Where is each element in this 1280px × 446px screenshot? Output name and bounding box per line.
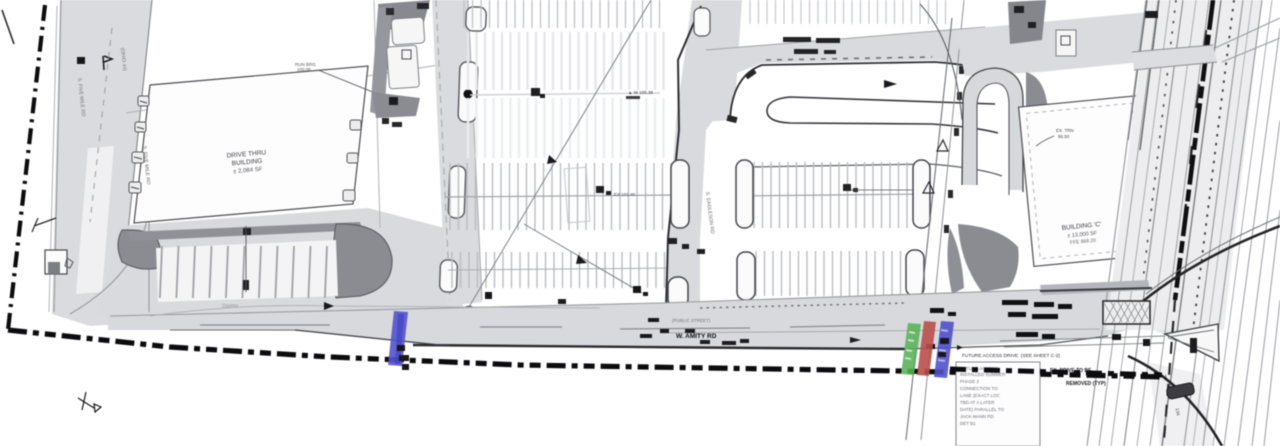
svg-text:EX 101.45: EX 101.45: [614, 192, 636, 197]
svg-text:DET B1: DET B1: [960, 421, 976, 426]
svg-text:FUTURE ACCESS DRIVE (SEE SHEE: FUTURE ACCESS DRIVE (SEE SHEET C-2): [962, 353, 1060, 359]
svg-text:100.08: 100.08: [297, 67, 311, 72]
svg-text:EX. TRN: EX. TRN: [1056, 128, 1074, 133]
svg-text:LANE (EXACT LOC: LANE (EXACT LOC: [960, 393, 1001, 398]
svg-text:86.50: 86.50: [1058, 134, 1070, 139]
svg-text:TBD AT A LATER: TBD AT A LATER: [960, 400, 995, 405]
svg-text:(PUBLIC STREET): (PUBLIC STREET): [672, 318, 711, 323]
svg-text:PHASE 2: PHASE 2: [960, 379, 980, 384]
svg-text:REMOVED (TYP): REMOVED (TYP): [1066, 381, 1106, 387]
svg-text:CONNECTION TO: CONNECTION TO: [960, 386, 998, 391]
svg-text:▲ W 105.38: ▲ W 105.38: [628, 90, 653, 95]
svg-text:JACK MANN RD: JACK MANN RD: [960, 414, 995, 419]
svg-text:DATE) PARALLEL TO: DATE) PARALLEL TO: [960, 407, 1005, 412]
svg-text:W. AMITY RD: W. AMITY RD: [676, 333, 717, 340]
